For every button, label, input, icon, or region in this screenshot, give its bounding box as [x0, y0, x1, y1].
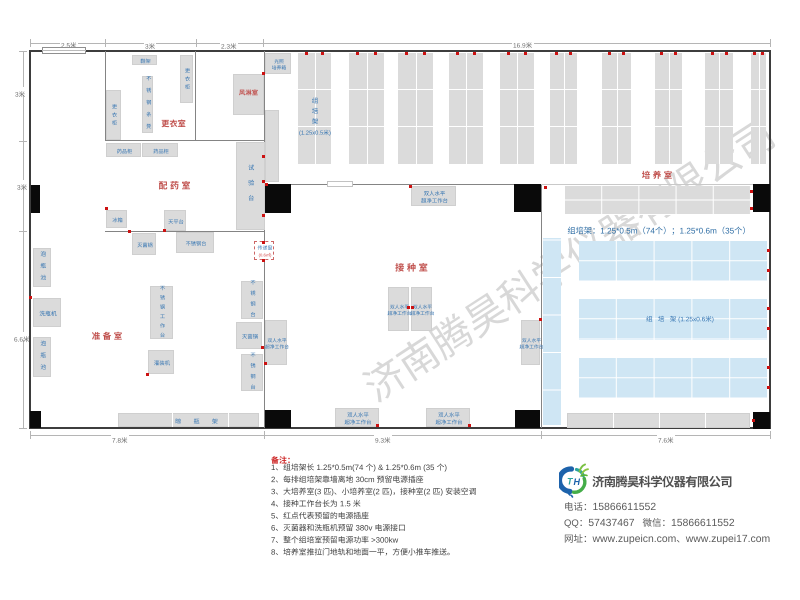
svg-text:H: H	[574, 477, 581, 487]
